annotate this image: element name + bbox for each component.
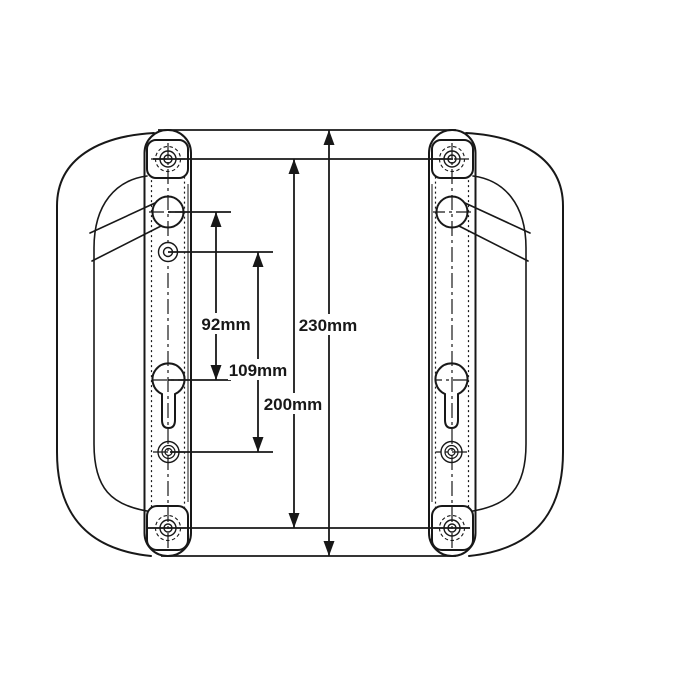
right-handle-assembly [429, 130, 563, 556]
dimension-labels: 92mm 109mm 200mm 230mm [199, 313, 359, 414]
arrowhead-200mm-up [289, 159, 300, 174]
left-handle-assembly [57, 130, 191, 556]
technical-drawing-canvas: 92mm 109mm 200mm 230mm [0, 0, 700, 700]
extension-lines [146, 130, 470, 556]
arrowhead-92mm-up [211, 212, 222, 227]
dimension-label-109mm: 109mm [229, 361, 288, 380]
arrowhead-92mm-down [211, 365, 222, 380]
arrowhead-200mm-down [289, 513, 300, 528]
right-handle [429, 130, 563, 556]
handle-dimension-diagram: 92mm 109mm 200mm 230mm [0, 0, 700, 700]
dimension-lines [211, 130, 335, 556]
left-handle [57, 130, 191, 556]
dimension-label-200mm: 200mm [264, 395, 323, 414]
arrowhead-230mm-up [324, 130, 335, 145]
arrowhead-230mm-down [324, 541, 335, 556]
arrowhead-109mm-up [253, 252, 264, 267]
dimension-label-92mm: 92mm [201, 315, 250, 334]
arrowhead-109mm-down [253, 437, 264, 452]
dimension-label-230mm: 230mm [299, 316, 358, 335]
